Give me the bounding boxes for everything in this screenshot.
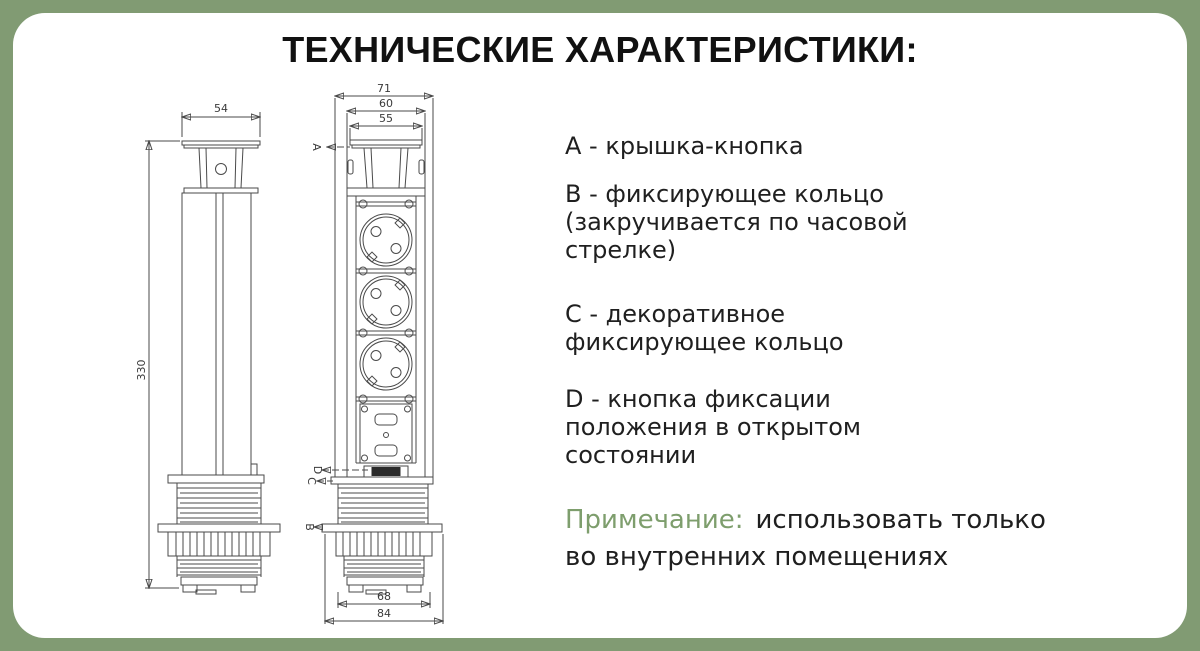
base-side xyxy=(181,577,257,594)
dim-label-60: 60 xyxy=(379,97,393,110)
usb-module xyxy=(360,404,412,463)
thread-lower-front xyxy=(344,556,424,577)
ribbed-collar-side xyxy=(168,532,270,556)
housing-outline xyxy=(335,98,433,477)
fixing-ring-side xyxy=(158,524,280,532)
module-divider xyxy=(356,200,416,208)
module-divider xyxy=(356,395,416,403)
socket-3 xyxy=(360,338,412,390)
callout-d: D xyxy=(311,466,368,474)
ribbed-collar-front xyxy=(336,532,432,556)
dim-label-330: 330 xyxy=(135,360,148,381)
page-title: ТЕХНИЧЕСКИЕ ХАРАКТЕРИСТИКИ: xyxy=(0,28,1200,72)
dim-label-55: 55 xyxy=(379,112,393,125)
lock-button-side xyxy=(251,464,257,475)
decorative-ring-front xyxy=(331,477,433,484)
neck-front xyxy=(348,148,424,188)
dim-width-54: 54 xyxy=(182,102,260,137)
body-column-side xyxy=(182,193,257,475)
side-view-drawing: 54 xyxy=(135,102,280,594)
callout-c: C xyxy=(305,477,333,485)
callout-label-d: D xyxy=(311,466,324,474)
callout-a: A xyxy=(310,143,350,151)
dim-width-55: 55 xyxy=(350,112,422,140)
socket-1 xyxy=(360,214,412,266)
socket-2 xyxy=(360,276,412,328)
front-view-drawing: 71 60 55 A xyxy=(303,82,443,624)
dim-width-71: 71 xyxy=(335,82,433,96)
cap-front xyxy=(350,140,422,148)
usb-port-2 xyxy=(375,445,397,456)
callout-label-a: A xyxy=(310,143,323,151)
dim-label-54: 54 xyxy=(214,102,228,115)
thread-upper-front xyxy=(338,484,428,524)
neck-side xyxy=(184,148,258,193)
thread-lower-side xyxy=(177,556,261,577)
note-text-line2: во внутренних помещениях xyxy=(565,539,1125,576)
dim-label-68: 68 xyxy=(377,590,391,603)
callout-label-c: C xyxy=(305,477,318,485)
callout-label-b: B xyxy=(303,523,316,531)
module-divider xyxy=(356,267,416,275)
dim-height-330: 330 xyxy=(135,141,180,588)
usb-port-1 xyxy=(375,414,397,425)
dim-width-68: 68 xyxy=(338,590,430,608)
module-divider xyxy=(356,329,416,337)
note-text-line1: использовать только xyxy=(756,505,1046,535)
usage-note: Примечание:использовать только во внутре… xyxy=(565,502,1125,576)
fixing-ring-front xyxy=(322,524,442,532)
thread-upper-side xyxy=(177,483,261,524)
decorative-ring-side xyxy=(168,475,264,483)
cap-side xyxy=(182,141,260,148)
dim-label-84: 84 xyxy=(377,607,391,620)
dim-width-60: 60 xyxy=(347,97,425,111)
callout-b: B xyxy=(303,523,322,531)
technical-drawing: 54 xyxy=(125,80,465,640)
dim-label-71: 71 xyxy=(377,82,391,95)
note-label: Примечание: xyxy=(565,505,744,535)
led-indicator xyxy=(384,433,389,438)
